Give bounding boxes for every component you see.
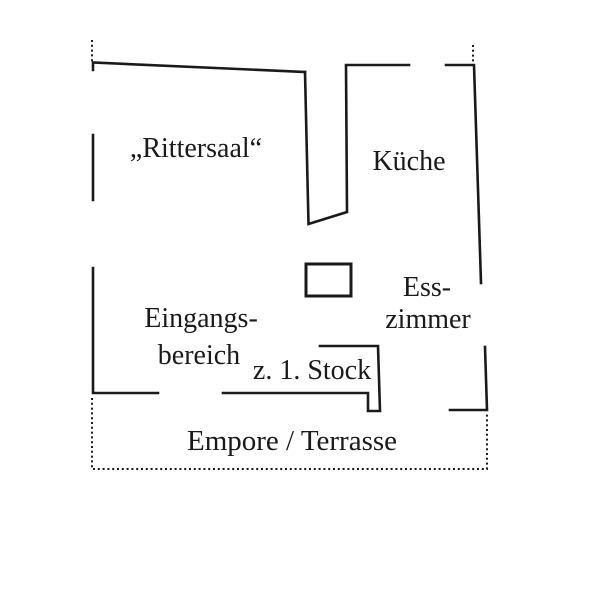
wall-right-lower (450, 347, 487, 410)
wall-chimney-notch (305, 65, 409, 224)
floor-plan-drawing: „Rittersaal“ Küche Ess- zimmer Eingangs-… (0, 0, 600, 600)
label-rittersaal: „Rittersaal“ (130, 133, 262, 164)
label-esszimmer-line2: zimmer (385, 304, 471, 335)
label-eingangsbereich-line2: bereich (158, 340, 240, 371)
label-kueche: Küche (372, 146, 445, 177)
pillar-rectangle (306, 264, 351, 296)
label-stairs: z. 1. Stock (253, 355, 371, 386)
label-esszimmer-line1: Ess- (403, 272, 451, 303)
label-terrace: Empore / Terrasse (187, 425, 397, 457)
label-eingangsbereich-line1: Eingangs- (144, 303, 258, 334)
wall-rittersaal-top (93, 63, 305, 73)
floor-plan-canvas: „Rittersaal“ Küche Ess- zimmer Eingangs-… (0, 0, 600, 600)
wall-right-upper (446, 65, 481, 283)
